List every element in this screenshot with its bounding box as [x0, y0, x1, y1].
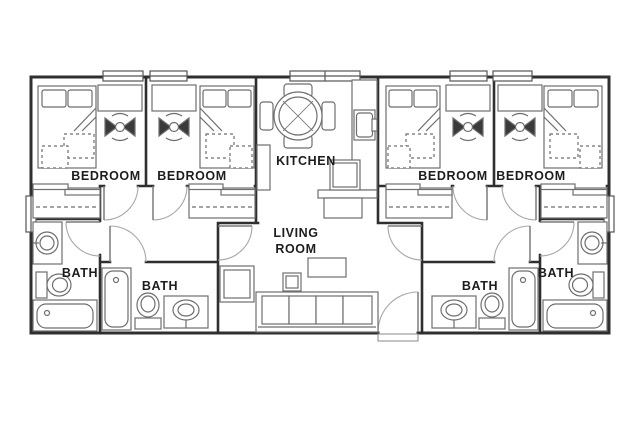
closet-bedroom-2: [189, 184, 255, 218]
bathtub-icon: [543, 300, 607, 331]
toilet-icon: [569, 272, 604, 298]
room-label-living-room-line1: LIVING: [273, 226, 318, 240]
pillow: [68, 90, 92, 107]
desk-icon: [98, 85, 142, 111]
room-label-bath-4: BATH: [538, 266, 574, 280]
pillow: [389, 90, 412, 107]
armchair-icon: [220, 266, 254, 302]
coffee-table-icon: [308, 258, 346, 277]
bed-icon: [386, 86, 440, 168]
bathtub-icon: [33, 300, 97, 331]
closet-bedroom-4: [541, 184, 607, 218]
desk-icon: [446, 85, 490, 111]
dining-chair-icon: [260, 102, 273, 130]
bathroom-sink-icon: [578, 222, 607, 264]
room-label-bedroom-4: BEDROOM: [496, 169, 565, 183]
floor-plan-canvas: BEDROOM BEDROOM KITCHEN BEDROOM BEDROOM …: [0, 0, 640, 432]
bed-icon: [544, 86, 602, 168]
window: [493, 71, 532, 81]
pillow: [228, 90, 251, 107]
closet-bedroom-1: [33, 184, 100, 218]
room-label-bath-2: BATH: [142, 279, 178, 293]
room-label-bath-1: BATH: [62, 266, 98, 280]
bathroom-sink-icon: [432, 296, 476, 328]
pillow: [414, 90, 437, 107]
window: [290, 71, 360, 81]
sofa-cushion: [262, 296, 289, 324]
side-table-icon: [283, 273, 301, 291]
dining-chair-icon: [322, 102, 335, 130]
toilet-icon: [479, 293, 505, 329]
bathtub-icon: [509, 268, 538, 330]
window: [150, 71, 187, 81]
sofa-icon: [256, 292, 378, 332]
desk-icon: [152, 85, 196, 111]
sofa-cushion: [289, 296, 316, 324]
floor-plan-page: BEDROOM BEDROOM KITCHEN BEDROOM BEDROOM …: [0, 0, 640, 432]
toilet-icon: [135, 293, 161, 329]
bathtub-icon: [102, 268, 131, 330]
room-label-bedroom-1: BEDROOM: [71, 169, 140, 183]
bed-icon: [38, 86, 96, 168]
desk-icon: [498, 85, 542, 111]
room-label-living-room-line2: ROOM: [275, 242, 316, 256]
pillow: [548, 90, 572, 107]
room-label-bedroom-2: BEDROOM: [157, 169, 226, 183]
room-label-bath-3: BATH: [462, 279, 498, 293]
bathroom-sink-icon: [33, 222, 62, 264]
closet-bedroom-3: [386, 184, 452, 218]
pantry-cabinet: [257, 145, 270, 190]
window: [450, 71, 487, 81]
pillow: [574, 90, 598, 107]
pillow: [42, 90, 66, 107]
room-label-kitchen: KITCHEN: [276, 154, 336, 168]
window: [103, 71, 143, 81]
kitchen-sink-icon: [354, 110, 377, 140]
bathroom-sink-icon: [164, 296, 208, 328]
sofa-cushion: [316, 296, 343, 324]
pillow: [203, 90, 226, 107]
sofa-cushion: [343, 296, 372, 324]
room-label-bedroom-3: BEDROOM: [418, 169, 487, 183]
bed-icon: [200, 86, 254, 168]
entry-threshold: [378, 334, 418, 341]
